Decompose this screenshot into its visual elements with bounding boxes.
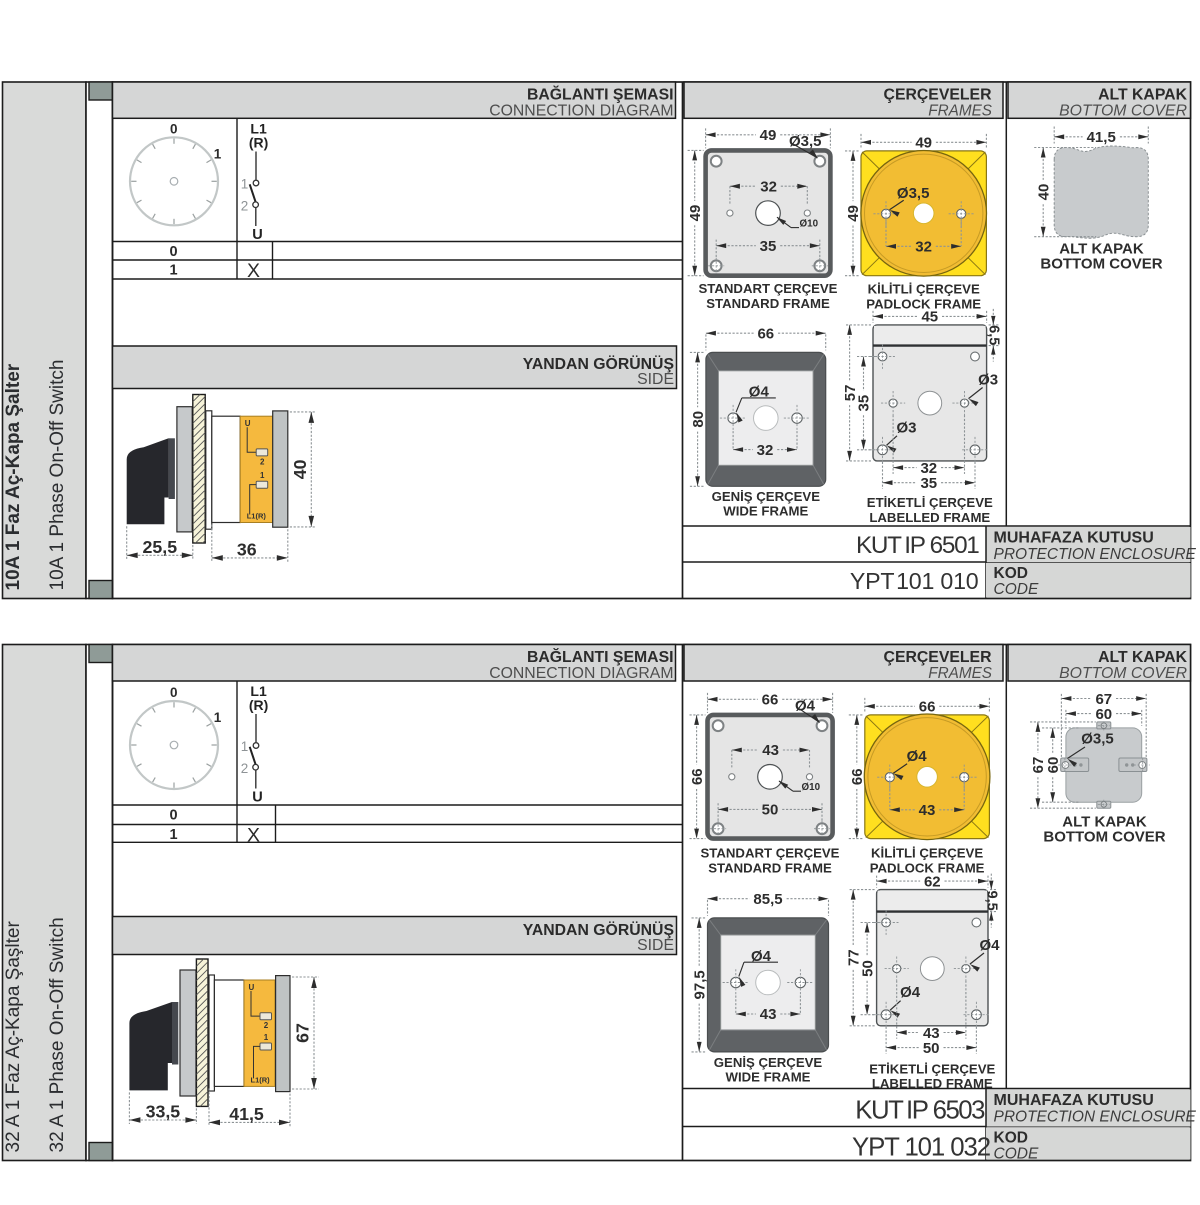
- svg-text:Ø3: Ø3: [978, 372, 998, 389]
- svg-text:35: 35: [920, 475, 937, 492]
- svg-text:BOTTOM COVER: BOTTOM COVER: [1043, 829, 1165, 846]
- svg-text:KOD: KOD: [994, 1130, 1028, 1147]
- svg-text:1: 1: [170, 263, 178, 279]
- svg-text:60: 60: [1095, 706, 1112, 723]
- svg-text:33,5: 33,5: [146, 1102, 181, 1122]
- svg-text:BOTTOM COVER: BOTTOM COVER: [1059, 665, 1187, 682]
- svg-text:SIDE: SIDE: [637, 937, 674, 954]
- svg-text:49: 49: [687, 205, 704, 222]
- svg-text:X: X: [247, 824, 260, 846]
- svg-text:45: 45: [921, 309, 938, 326]
- svg-text:2: 2: [241, 199, 249, 214]
- svg-text:36: 36: [237, 539, 257, 559]
- svg-text:(R): (R): [249, 697, 268, 713]
- svg-text:66: 66: [757, 325, 774, 342]
- svg-text:BOTTOM COVER: BOTTOM COVER: [1059, 103, 1187, 120]
- svg-text:WIDE FRAME: WIDE FRAME: [726, 1070, 811, 1085]
- svg-text:LABELLED FRAME: LABELLED FRAME: [869, 510, 990, 525]
- svg-text:Ø3,5: Ø3,5: [897, 185, 930, 202]
- svg-text:ALT KAPAK: ALT KAPAK: [1098, 87, 1188, 104]
- svg-text:Ø3,5: Ø3,5: [1081, 731, 1114, 748]
- svg-text:WIDE FRAME: WIDE FRAME: [723, 504, 808, 519]
- svg-text:BAĞLANTI ŞEMASI: BAĞLANTI ŞEMASI: [527, 85, 674, 104]
- svg-text:U: U: [252, 227, 262, 243]
- svg-text:GENİŞ ÇERÇEVE: GENİŞ ÇERÇEVE: [712, 489, 821, 504]
- svg-text:1: 1: [241, 177, 249, 192]
- svg-text:KUT IP 6503: KUT IP 6503: [855, 1097, 985, 1125]
- svg-text:ETİKETLİ ÇERÇEVE: ETİKETLİ ÇERÇEVE: [867, 495, 993, 510]
- svg-text:1: 1: [170, 827, 178, 843]
- svg-text:66: 66: [689, 768, 706, 785]
- svg-text:KİLİTLİ ÇERÇEVE: KİLİTLİ ÇERÇEVE: [868, 282, 980, 297]
- svg-text:2: 2: [264, 1021, 269, 1030]
- svg-text:40: 40: [290, 459, 310, 479]
- svg-text:10A 1 Phase On-Off Switch: 10A 1 Phase On-Off Switch: [47, 360, 68, 591]
- svg-text:STANDARD FRAME: STANDARD FRAME: [706, 296, 830, 311]
- svg-text:67: 67: [293, 1023, 313, 1043]
- svg-text:KİLİTLİ ÇERÇEVE: KİLİTLİ ÇERÇEVE: [871, 846, 983, 861]
- svg-text:CODE: CODE: [994, 581, 1039, 598]
- svg-text:97,5: 97,5: [691, 970, 708, 999]
- svg-text:2: 2: [241, 761, 249, 776]
- svg-text:Ø3,5: Ø3,5: [789, 133, 822, 150]
- svg-text:Ø10: Ø10: [802, 782, 821, 793]
- svg-text:25,5: 25,5: [142, 537, 177, 557]
- svg-text:85,5: 85,5: [753, 891, 782, 908]
- svg-text:32: 32: [757, 442, 774, 459]
- svg-text:49: 49: [760, 127, 777, 144]
- svg-text:STANDARD FRAME: STANDARD FRAME: [708, 860, 832, 875]
- svg-text:(R): (R): [249, 134, 268, 150]
- svg-text:ALT KAPAK: ALT KAPAK: [1098, 649, 1188, 666]
- svg-text:1: 1: [214, 710, 222, 725]
- svg-text:U: U: [245, 419, 251, 428]
- svg-text:0: 0: [170, 244, 178, 260]
- svg-text:CODE: CODE: [994, 1146, 1039, 1163]
- svg-text:32 A 1 Phase On-Off Switch: 32 A 1 Phase On-Off Switch: [47, 917, 68, 1152]
- svg-text:1: 1: [214, 146, 222, 161]
- svg-text:50: 50: [859, 960, 876, 977]
- svg-text:MUHAFAZA KUTUSU: MUHAFAZA KUTUSU: [994, 1092, 1154, 1109]
- svg-text:YPT 101 010: YPT 101 010: [850, 568, 979, 594]
- svg-text:SIDE: SIDE: [637, 371, 674, 388]
- svg-text:KOD: KOD: [994, 565, 1028, 582]
- svg-text:1: 1: [264, 1033, 269, 1042]
- svg-text:32: 32: [760, 179, 777, 196]
- svg-text:49: 49: [845, 205, 862, 222]
- svg-text:YPT 101 032: YPT 101 032: [852, 1134, 991, 1162]
- svg-text:ÇERÇEVELER: ÇERÇEVELER: [884, 87, 993, 104]
- svg-text:U: U: [249, 983, 255, 992]
- svg-text:66: 66: [762, 692, 779, 709]
- svg-text:ÇERÇEVELER: ÇERÇEVELER: [884, 649, 993, 666]
- svg-text:50: 50: [762, 802, 779, 819]
- svg-text:KUT IP 6501: KUT IP 6501: [856, 532, 979, 559]
- svg-text:43: 43: [760, 1006, 777, 1023]
- svg-text:0: 0: [170, 121, 178, 136]
- svg-text:STANDART ÇERÇEVE: STANDART ÇERÇEVE: [699, 281, 838, 296]
- svg-text:CONNECTION DIAGRAM: CONNECTION DIAGRAM: [489, 103, 673, 120]
- svg-text:Ø4: Ø4: [907, 748, 928, 765]
- svg-text:0: 0: [170, 808, 178, 824]
- svg-text:62: 62: [924, 873, 941, 890]
- svg-text:Ø3: Ø3: [896, 419, 916, 436]
- svg-text:41,5: 41,5: [1087, 129, 1116, 146]
- svg-text:L1(R): L1(R): [247, 512, 267, 521]
- svg-text:MUHAFAZA KUTUSU: MUHAFAZA KUTUSU: [994, 530, 1154, 547]
- svg-text:32: 32: [915, 239, 932, 256]
- svg-text:66: 66: [919, 699, 936, 716]
- svg-text:STANDART ÇERÇEVE: STANDART ÇERÇEVE: [701, 846, 840, 861]
- svg-text:GENİŞ ÇERÇEVE: GENİŞ ÇERÇEVE: [714, 1055, 823, 1070]
- svg-text:50: 50: [923, 1040, 940, 1057]
- svg-text:10A 1 Faz Aç-Kapa Şalter: 10A 1 Faz Aç-Kapa Şalter: [3, 363, 24, 590]
- svg-text:ETİKETLİ ÇERÇEVE: ETİKETLİ ÇERÇEVE: [869, 1061, 995, 1076]
- svg-text:L1(R): L1(R): [251, 1075, 271, 1084]
- svg-text:9,5: 9,5: [983, 890, 999, 910]
- svg-text:BAĞLANTI ŞEMASI: BAĞLANTI ŞEMASI: [527, 647, 674, 666]
- svg-text:Ø10: Ø10: [800, 218, 819, 229]
- svg-text:2: 2: [260, 457, 265, 466]
- svg-text:Ø4: Ø4: [979, 937, 1000, 954]
- svg-text:PROTECTION ENCLOSURE: PROTECTION ENCLOSURE: [994, 546, 1197, 563]
- svg-text:49: 49: [915, 135, 932, 152]
- svg-text:U: U: [252, 790, 262, 806]
- svg-text:43: 43: [919, 802, 936, 819]
- svg-text:66: 66: [849, 768, 866, 785]
- svg-text:1: 1: [260, 471, 265, 480]
- svg-text:40: 40: [1035, 184, 1052, 201]
- svg-text:1: 1: [241, 739, 249, 754]
- svg-text:Ø4: Ø4: [795, 697, 816, 714]
- svg-text:FRAMES: FRAMES: [928, 103, 993, 120]
- svg-text:35: 35: [760, 238, 777, 255]
- svg-text:43: 43: [762, 742, 779, 759]
- svg-text:CONNECTION DIAGRAM: CONNECTION DIAGRAM: [489, 665, 673, 682]
- svg-text:FRAMES: FRAMES: [928, 665, 993, 682]
- svg-text:0: 0: [170, 685, 178, 700]
- svg-text:35: 35: [856, 395, 873, 412]
- svg-text:41,5: 41,5: [229, 1104, 264, 1124]
- svg-text:Ø4: Ø4: [900, 984, 921, 1001]
- svg-text:80: 80: [690, 411, 707, 428]
- svg-text:60: 60: [1045, 757, 1062, 774]
- svg-text:BOTTOM COVER: BOTTOM COVER: [1040, 255, 1162, 272]
- svg-text:X: X: [247, 260, 260, 282]
- svg-text:PROTECTION ENCLOSURE: PROTECTION ENCLOSURE: [994, 1109, 1197, 1126]
- svg-text:6,5: 6,5: [985, 325, 1001, 345]
- svg-text:32 A 1 Faz Aç-Kapa Şaşlter: 32 A 1 Faz Aç-Kapa Şaşlter: [3, 921, 24, 1153]
